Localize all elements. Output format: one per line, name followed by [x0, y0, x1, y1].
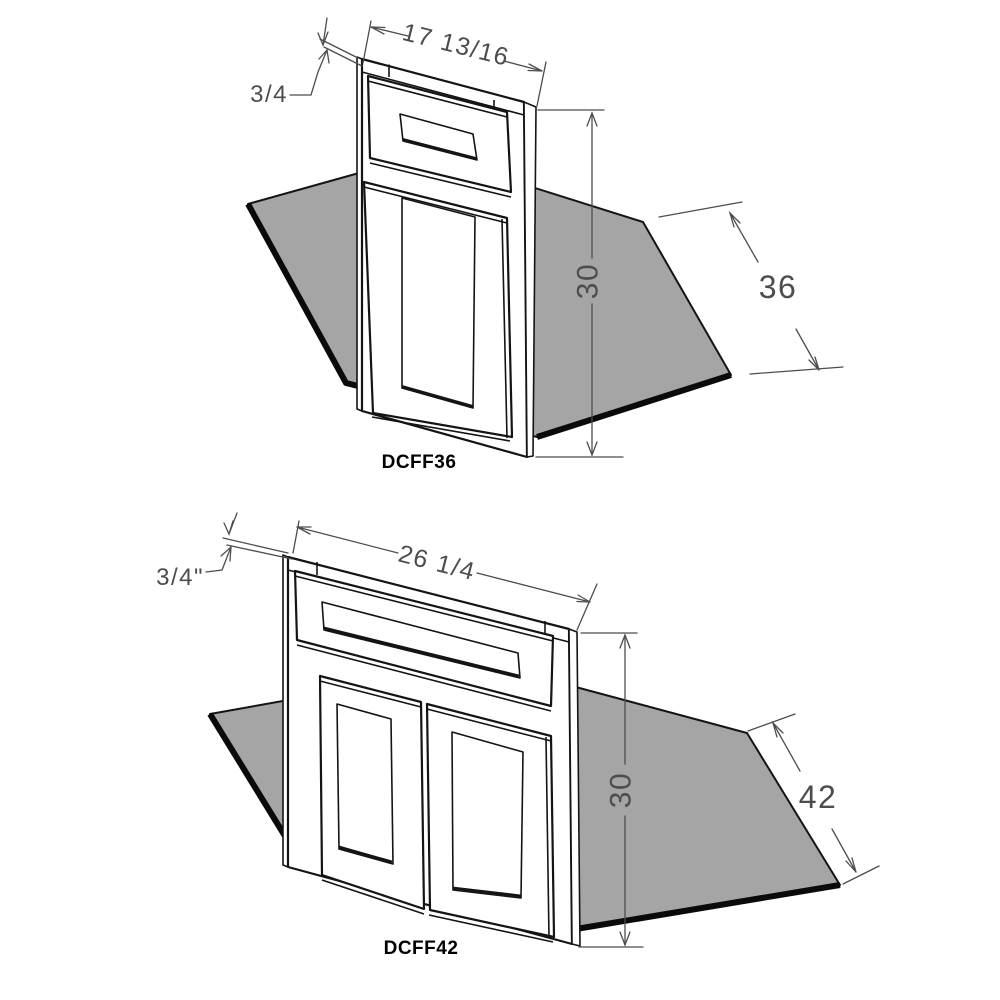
depth-value: 36 [759, 269, 798, 305]
diagram-dcff36: 3/4 17 13/16 30 [248, 18, 843, 473]
extension-line [659, 202, 742, 217]
dimension-line [297, 527, 398, 553]
arrowhead [730, 213, 740, 227]
extension-line [363, 21, 371, 63]
extension-line [750, 367, 843, 374]
arrowhead [846, 858, 856, 872]
door-left-recess [337, 704, 393, 864]
arrowhead [224, 521, 233, 534]
cabinet-front-36 [357, 57, 536, 457]
drawing-canvas: 3/4 17 13/16 30 [0, 0, 1000, 1000]
thickness-value: 3/4 [250, 81, 288, 108]
extension-line [293, 521, 299, 553]
door-recess [402, 198, 475, 408]
diagram-dcff42: 3/4" 26 1/4 30 [156, 513, 879, 959]
dim-thickness-36: 3/4 [250, 18, 362, 108]
dimension-line [773, 723, 800, 771]
depth-value: 42 [799, 779, 838, 815]
dimension-line [832, 829, 856, 872]
height-value: 30 [572, 263, 605, 299]
frame-right-side [524, 102, 536, 457]
dimension-line [796, 329, 819, 370]
arrowhead [773, 723, 783, 737]
height-value: 30 [605, 772, 638, 808]
dim-thickness-42: 3/4" [156, 513, 292, 591]
dimension-line [477, 573, 590, 602]
arrowhead [809, 357, 819, 370]
model-label-dcff36: DCFF36 [382, 452, 457, 473]
dimension-line [730, 213, 758, 262]
width-value: 17 13/16 [400, 18, 513, 72]
model-label-dcff42: DCFF42 [384, 938, 459, 959]
door-right-recess [452, 732, 523, 898]
dimension-line [504, 61, 542, 71]
extension-line [843, 866, 879, 884]
drawing-page: 3/4 17 13/16 30 [0, 0, 1000, 1000]
cabinet-front-42 [283, 555, 580, 946]
thickness-value: 3/4" [156, 564, 204, 591]
width-value: 26 1/4 [396, 540, 479, 587]
extension-line [748, 714, 795, 731]
extension-line [577, 584, 597, 630]
